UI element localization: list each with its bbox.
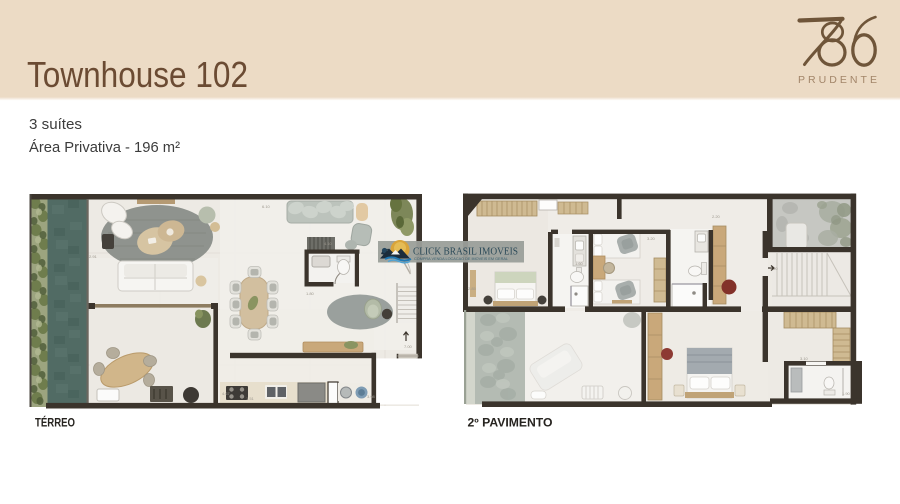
svg-text:7.00: 7.00	[404, 344, 413, 349]
svg-text:1.51: 1.51	[246, 396, 255, 401]
svg-text:3.10: 3.10	[800, 356, 809, 361]
svg-text:2.20: 2.20	[712, 214, 721, 219]
svg-text:3.20: 3.20	[647, 236, 656, 241]
svg-text:3.98: 3.98	[367, 394, 376, 399]
svg-text:3 suítes: 3 suítes	[29, 116, 82, 133]
svg-text:1.90: 1.90	[842, 391, 851, 396]
svg-text:2º PAVIMENTO: 2º PAVIMENTO	[468, 418, 553, 430]
svg-text:1.80: 1.80	[306, 291, 315, 296]
svg-text:CLICK BRASIL IMOVEIS: CLICK BRASIL IMOVEIS	[413, 247, 518, 258]
svg-text:6.10: 6.10	[262, 204, 271, 209]
svg-text:1.20: 1.20	[770, 266, 779, 271]
svg-text:COMPRA VENDA LOCACAO DE IM: COMPRA VENDA LOCACAO DE IMOVEIS EM GERAL	[414, 257, 508, 261]
svg-text:4.10: 4.10	[324, 241, 333, 246]
svg-text:1.60: 1.60	[575, 261, 584, 266]
svg-text:2.85: 2.85	[468, 286, 477, 291]
svg-text:Townhouse 102: Townhouse 102	[27, 54, 248, 95]
svg-text:TÉRREO: TÉRREO	[35, 417, 75, 430]
svg-text:4.67: 4.67	[222, 391, 231, 396]
svg-text:PRUDENTE: PRUDENTE	[798, 74, 880, 86]
svg-text:2.91: 2.91	[89, 254, 98, 259]
svg-text:Área Privativa - 196 m²: Área Privativa - 196 m²	[29, 139, 180, 156]
